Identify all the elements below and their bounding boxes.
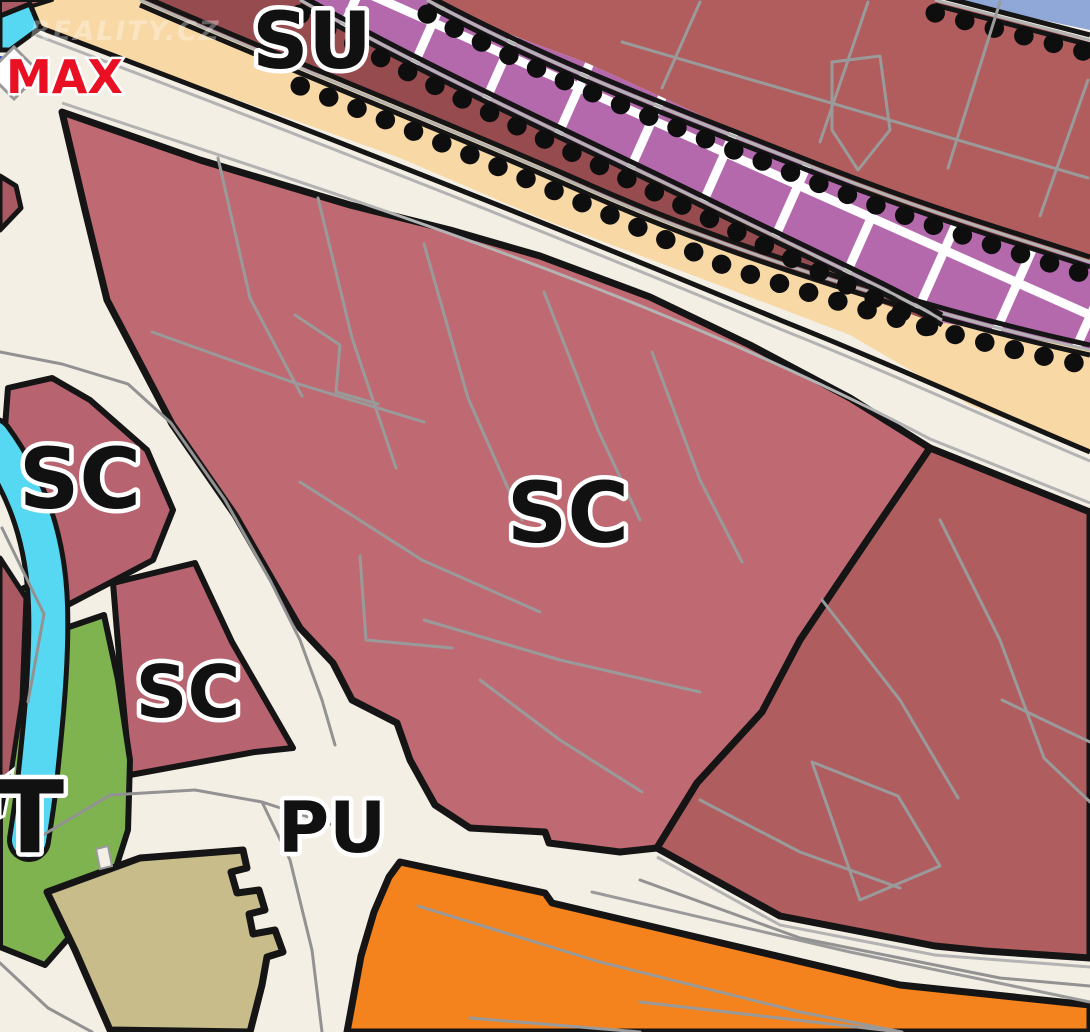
watermark-text: REALITY.CZ <box>30 16 221 47</box>
label-sc-west: SC <box>19 430 141 528</box>
label-su: SU <box>252 0 372 87</box>
label-max: MAX <box>6 50 123 104</box>
label-sc-small: SC <box>136 650 241 734</box>
khaki-white-notch-parcel <box>96 846 112 869</box>
zoning-map-canvas: REALITY.CZ SU SC SC SC PU T MAX <box>0 0 1090 1032</box>
zoning-map-screenshot: REALITY.CZ SU SC SC SC PU T MAX <box>0 0 1090 1032</box>
label-pu: PU <box>278 787 386 869</box>
label-t: T <box>0 759 64 876</box>
label-sc-central: SC <box>507 464 629 562</box>
